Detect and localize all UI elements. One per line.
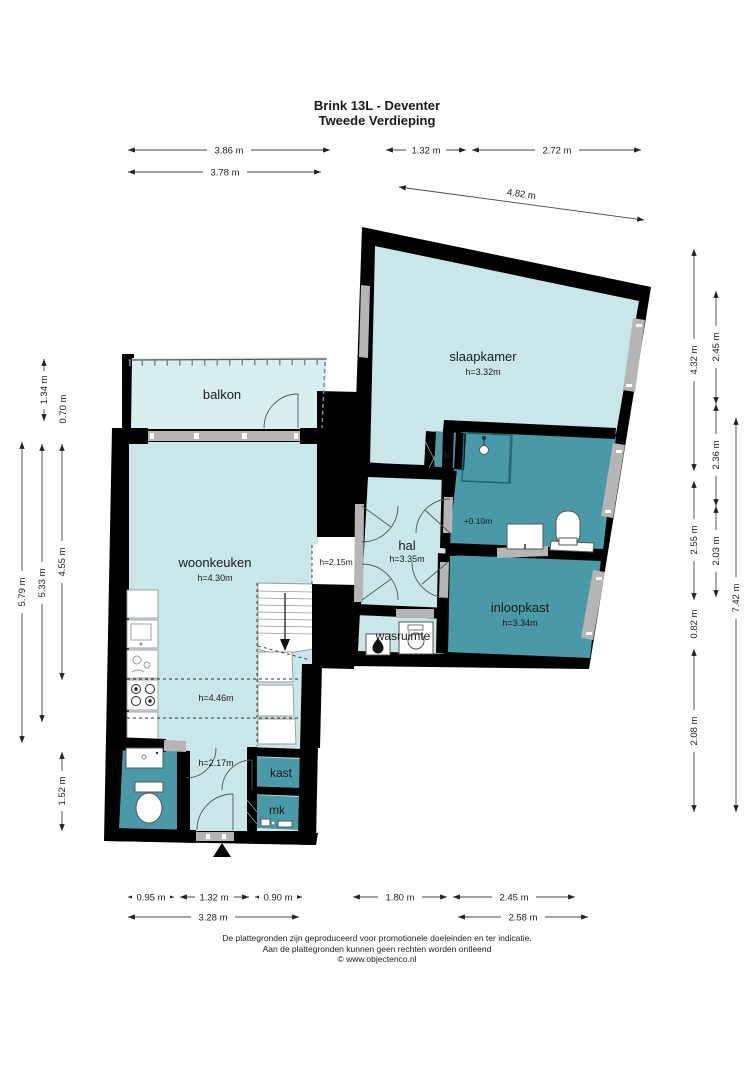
- svg-text:1.80 m: 1.80 m: [385, 893, 414, 904]
- svg-text:4.82 m: 4.82 m: [506, 187, 536, 202]
- dim-right-742: 7.42 m: [730, 418, 742, 812]
- label-inloopkast-h: h=3.34m: [502, 618, 537, 628]
- toilet-door-opening: [164, 740, 186, 752]
- dim-right-203: 2.03 m: [710, 506, 722, 597]
- dim-right-432: 4.32 m: [688, 249, 700, 471]
- svg-text:3.86 m: 3.86 m: [214, 146, 243, 157]
- svg-text:3.28 m: 3.28 m: [198, 913, 227, 924]
- sink-icon: [126, 748, 163, 768]
- floorplan-page: Brink 13L - Deventer Tweede Verdieping: [0, 0, 754, 1067]
- toilet-tank-icon: [135, 782, 163, 792]
- svg-text:2.36 m: 2.36 m: [711, 440, 722, 469]
- label-kast: kast: [270, 766, 293, 780]
- dim-right-255: 2.55 m: [688, 481, 700, 600]
- dim-top-482: 4.82 m: [399, 187, 644, 220]
- svg-text:4.32 m: 4.32 m: [689, 345, 700, 374]
- shower-head-icon: [480, 446, 489, 455]
- disclaimer-line1: De plattegronden zijn geproduceerd voor …: [0, 933, 754, 944]
- svg-text:5.79 m: 5.79 m: [17, 577, 28, 606]
- closets-white: [258, 652, 296, 744]
- label-hal-h: h=3.35m: [389, 554, 424, 564]
- dim-left-579: 5.79 m: [16, 442, 28, 743]
- svg-text:0.90 m: 0.90 m: [263, 893, 292, 904]
- dim-right-208: 2.08 m: [688, 649, 700, 812]
- label-h215: h=2.15m: [319, 557, 352, 567]
- dim-bottom-258: 2.58 m: [458, 911, 588, 924]
- dim-right-236: 2.36 m: [710, 404, 722, 506]
- entrance-arrow-icon: [213, 843, 231, 857]
- svg-text:5.33 m: 5.33 m: [37, 568, 48, 597]
- dim-left-070: 0.70 m: [57, 392, 69, 427]
- svg-text:1.34 m: 1.34 m: [39, 375, 50, 404]
- disclaimer-line2: Aan de plattegronden kunnen geen rechten…: [0, 944, 754, 955]
- svg-text:2.45 m: 2.45 m: [499, 893, 528, 904]
- label-floor-level: +0.10m: [464, 516, 493, 526]
- dim-top-272: 2.72 m: [472, 144, 641, 157]
- dim-left-134: 1.34 m: [38, 359, 50, 421]
- dim-top-378: 3.78 m: [128, 166, 321, 179]
- label-h217: h=2.17m: [198, 758, 233, 768]
- svg-text:0.95 m: 0.95 m: [136, 893, 165, 904]
- label-woonkeuken-h: h=4.30m: [197, 573, 232, 583]
- dim-bottom-095: 0.95 m: [128, 891, 174, 904]
- copyright: © www.objectenco.nl: [0, 954, 754, 965]
- dim-right-245: 2.45 m: [710, 291, 722, 404]
- disclaimer: De plattegronden zijn geproduceerd voor …: [0, 933, 754, 965]
- dim-right-082: 0.82 m: [688, 605, 700, 643]
- svg-text:7.42 m: 7.42 m: [731, 583, 742, 612]
- dim-top-386: 3.86 m: [128, 144, 330, 157]
- label-slaapkamer: slaapkamer: [449, 349, 517, 364]
- dim-left-455: 4.55 m: [56, 444, 68, 680]
- svg-text:2.03 m: 2.03 m: [711, 536, 722, 565]
- svg-text:1.52 m: 1.52 m: [57, 776, 68, 805]
- label-k: k: [444, 448, 451, 462]
- dim-left-533: 5.33 m: [36, 444, 48, 722]
- label-balkon: balkon: [203, 387, 241, 402]
- svg-text:3.78 m: 3.78 m: [210, 168, 239, 179]
- svg-text:2.08 m: 2.08 m: [689, 716, 700, 745]
- dim-left-152: 1.52 m: [56, 752, 68, 831]
- dim-top-132: 1.32 m: [386, 144, 466, 157]
- svg-text:2.45 m: 2.45 m: [711, 332, 722, 361]
- entrance-sill: [196, 832, 234, 841]
- label-mk: mk: [269, 803, 286, 817]
- label-slaapkamer-h: h=3.32m: [465, 367, 500, 377]
- svg-text:0.82 m: 0.82 m: [689, 609, 700, 638]
- dim-bottom-132: 1.32 m: [180, 891, 249, 904]
- floor-plan-svg: balkon slaapkamer h=3.32m woonkeuken h=4…: [0, 0, 754, 1067]
- svg-text:2.58 m: 2.58 m: [508, 913, 537, 924]
- label-h446: h=4.46m: [198, 693, 233, 703]
- sliding-door-icon: [148, 431, 300, 441]
- svg-text:2.72 m: 2.72 m: [542, 146, 571, 157]
- dim-bottom-180: 1.80 m: [353, 891, 447, 904]
- svg-text:0.70 m: 0.70 m: [58, 394, 69, 423]
- label-inloopkast: inloopkast: [491, 600, 550, 615]
- label-wasruimte: wasruimte: [375, 629, 431, 643]
- label-woonkeuken: woonkeuken: [178, 555, 252, 570]
- dim-bottom-245: 2.45 m: [453, 891, 575, 904]
- dim-bottom-090: 0.90 m: [255, 891, 302, 904]
- dim-bottom-328: 3.28 m: [128, 911, 299, 924]
- toilet-icon: [136, 793, 162, 823]
- svg-text:1.32 m: 1.32 m: [199, 893, 228, 904]
- kitchen-counter: [127, 590, 158, 745]
- stairs: [258, 583, 313, 655]
- svg-text:2.55 m: 2.55 m: [689, 525, 700, 554]
- label-hal: hal: [398, 538, 415, 553]
- svg-text:1.32 m: 1.32 m: [411, 146, 440, 157]
- svg-text:4.55 m: 4.55 m: [57, 547, 68, 576]
